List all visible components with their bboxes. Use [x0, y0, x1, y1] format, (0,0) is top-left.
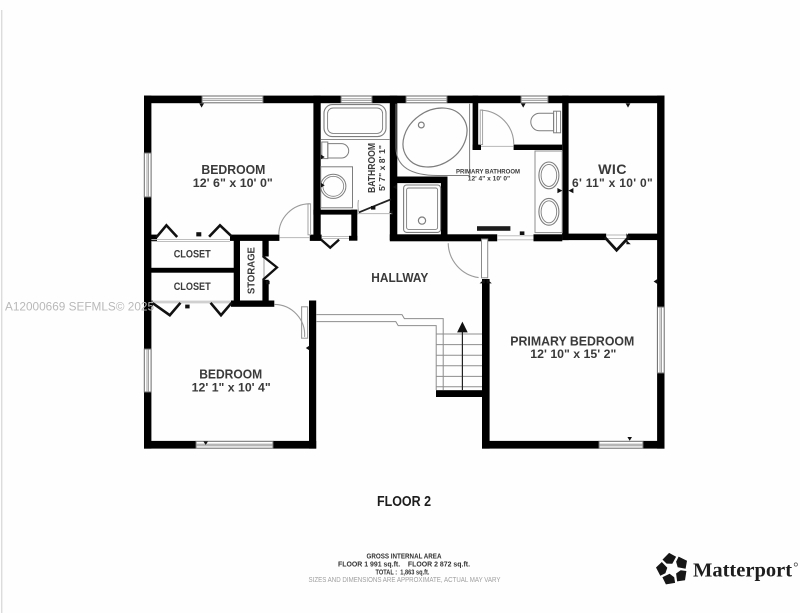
svg-text:FLOOR 2: FLOOR 2 — [377, 494, 431, 510]
svg-text:CLOSET: CLOSET — [174, 249, 211, 261]
svg-text:12' 6" x 10' 0": 12' 6" x 10' 0" — [193, 176, 273, 190]
svg-text:PRIMARY BATHROOM: PRIMARY BATHROOM — [456, 169, 520, 176]
svg-text:BEDROOM: BEDROOM — [199, 367, 262, 382]
svg-text:12' 4" x 10' 0": 12' 4" x 10' 0" — [468, 176, 510, 183]
svg-text:12' 10" x 15' 2": 12' 10" x 15' 2" — [530, 347, 616, 361]
svg-text:A12000669 SEFMLS© 2025: A12000669 SEFMLS© 2025 — [5, 300, 154, 314]
svg-text:HALLWAY: HALLWAY — [371, 270, 428, 285]
svg-text:BATHROOM: BATHROOM — [367, 143, 378, 193]
svg-text:SIZES AND DIMENSIONS ARE APPRO: SIZES AND DIMENSIONS ARE APPROXIMATE, AC… — [309, 575, 501, 584]
svg-text:12' 1" x 10' 4": 12' 1" x 10' 4" — [192, 380, 271, 394]
svg-text:Matterport: Matterport — [693, 560, 792, 582]
svg-text:5' 7" x 8' 1": 5' 7" x 8' 1" — [378, 145, 387, 191]
svg-text:BEDROOM: BEDROOM — [201, 162, 265, 177]
svg-text:CLOSET: CLOSET — [174, 281, 211, 293]
svg-text:6' 11" x 10' 0": 6' 11" x 10' 0" — [572, 176, 653, 190]
svg-text:STORAGE: STORAGE — [246, 247, 257, 294]
